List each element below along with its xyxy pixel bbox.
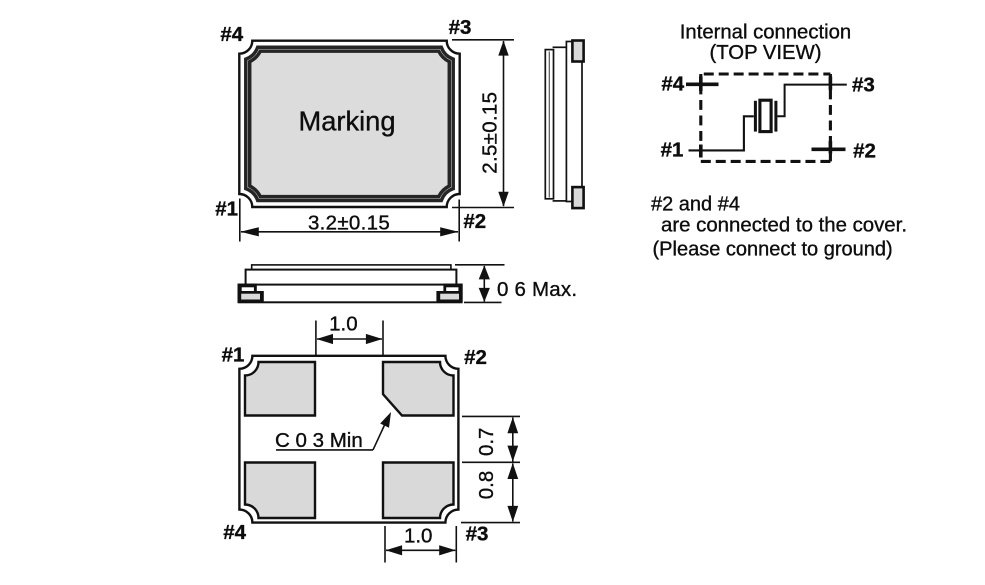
svg-text:0 6 Max.: 0 6 Max. (497, 278, 577, 301)
svg-text:#3: #3 (852, 74, 875, 97)
svg-text:#3: #3 (466, 523, 489, 546)
svg-text:#2: #2 (464, 346, 487, 369)
svg-text:are connected to the cover.: are connected to the cover. (661, 215, 907, 237)
svg-text:#2: #2 (463, 210, 486, 233)
svg-text:0.8: 0.8 (475, 471, 498, 500)
svg-text:(Please connect to ground): (Please connect to ground) (653, 239, 893, 261)
svg-text:#4: #4 (223, 521, 246, 544)
svg-text:#4: #4 (220, 23, 243, 46)
svg-text:(TOP VIEW): (TOP VIEW) (710, 42, 822, 64)
svg-text:3.2±0.15: 3.2±0.15 (308, 211, 390, 234)
svg-text:#3: #3 (449, 16, 472, 39)
svg-text:#1: #1 (222, 344, 245, 367)
svg-text:0.7: 0.7 (475, 428, 498, 457)
svg-text:#2 and #4: #2 and #4 (651, 194, 740, 216)
svg-text:Internal connection: Internal connection (680, 22, 851, 44)
svg-text:#1: #1 (661, 138, 684, 161)
svg-text:#4: #4 (661, 72, 684, 95)
svg-text:1.0: 1.0 (404, 525, 433, 548)
svg-text:#1: #1 (215, 197, 238, 220)
svg-text:Marking: Marking (298, 105, 395, 136)
svg-text:1.0: 1.0 (329, 313, 358, 336)
svg-text:2.5±0.15: 2.5±0.15 (479, 92, 502, 174)
svg-text:C 0 3 Min: C 0 3 Min (275, 429, 363, 452)
svg-text:#2: #2 (853, 140, 876, 163)
